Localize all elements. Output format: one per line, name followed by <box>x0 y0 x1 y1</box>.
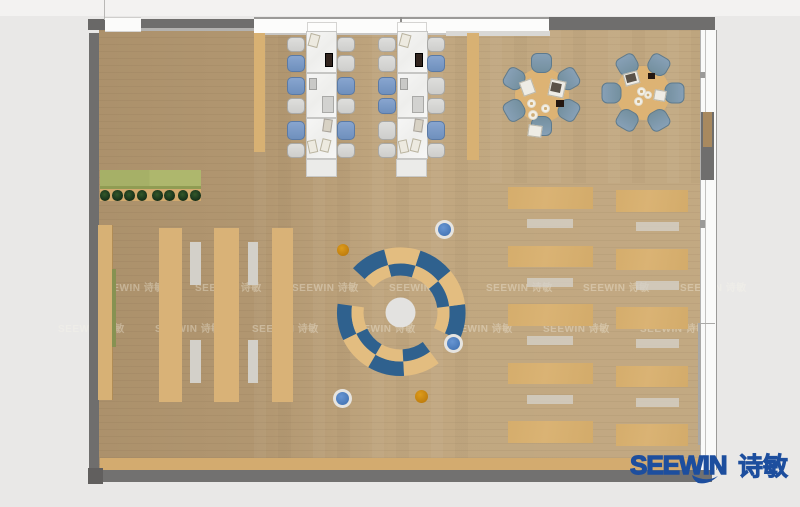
svg-text:SEEWIN: SEEWIN <box>630 450 727 480</box>
svg-text:诗敏: 诗敏 <box>738 452 788 481</box>
